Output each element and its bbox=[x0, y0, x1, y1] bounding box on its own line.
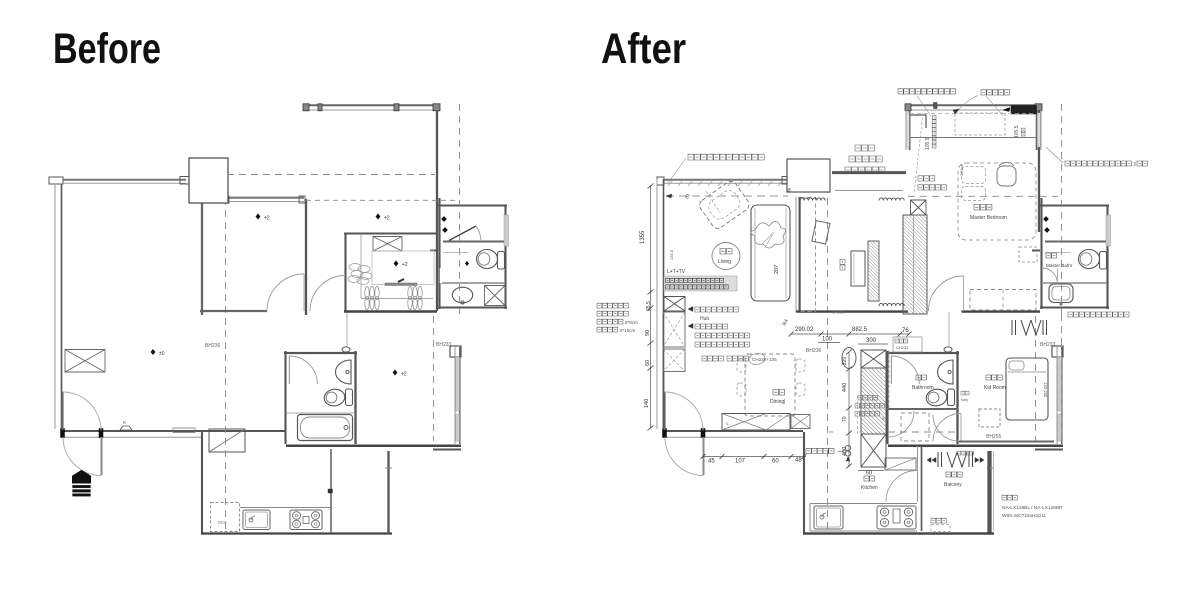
svg-text:Before: Before bbox=[53, 25, 161, 73]
svg-text:BH255: BH255 bbox=[986, 434, 1002, 440]
svg-text:8*16cm: 8*16cm bbox=[620, 328, 636, 333]
svg-text:Kid Room: Kid Room bbox=[984, 385, 1006, 391]
svg-text:Master Bathr: Master Bathr bbox=[1046, 263, 1073, 268]
svg-text:+2: +2 bbox=[402, 262, 408, 268]
svg-text:+2: +2 bbox=[384, 216, 390, 222]
svg-text:76: 76 bbox=[902, 328, 909, 334]
svg-text:90: 90 bbox=[645, 330, 651, 336]
svg-text:Kitchen: Kitchen bbox=[861, 485, 878, 491]
svg-text:Master Bedroom: Master Bedroom bbox=[970, 215, 1007, 221]
svg-text:8*8cm: 8*8cm bbox=[625, 320, 638, 325]
svg-text:100: 100 bbox=[822, 337, 833, 343]
svg-text:c.: c. bbox=[726, 421, 730, 426]
svg-text:440: 440 bbox=[842, 383, 848, 392]
svg-text:REF: REF bbox=[218, 520, 227, 525]
svg-text:45: 45 bbox=[708, 459, 715, 465]
svg-text:105.5: 105.5 bbox=[1014, 125, 1020, 138]
svg-text:105.5: 105.5 bbox=[925, 137, 931, 150]
svg-text:Balcony: Balcony bbox=[944, 482, 962, 488]
svg-text:220: 220 bbox=[842, 356, 848, 365]
svg-text:Bathroom: Bathroom bbox=[912, 385, 934, 391]
svg-text:70: 70 bbox=[842, 416, 848, 422]
svg-text:60: 60 bbox=[866, 471, 872, 477]
svg-text:+2: +2 bbox=[264, 216, 270, 222]
svg-text:48: 48 bbox=[795, 458, 802, 464]
svg-text:BH233: BH233 bbox=[436, 342, 452, 348]
svg-text:150cm: 150cm bbox=[959, 163, 964, 176]
svg-text:W60.4xD722xH1011: W60.4xD722xH1011 bbox=[1002, 513, 1046, 519]
svg-text:60: 60 bbox=[772, 459, 779, 465]
svg-text:60: 60 bbox=[645, 360, 651, 366]
svg-text:bafy: bafy bbox=[961, 398, 968, 402]
svg-text:207: 207 bbox=[774, 265, 780, 274]
svg-text:107: 107 bbox=[735, 459, 746, 465]
svg-text:300: 300 bbox=[866, 338, 877, 344]
svg-text:65: 65 bbox=[882, 416, 887, 421]
svg-text:3: 3 bbox=[1133, 162, 1136, 168]
svg-text:Living: Living bbox=[718, 259, 731, 265]
svg-text:135.5: 135.5 bbox=[669, 249, 674, 260]
svg-text:Hub: Hub bbox=[700, 316, 709, 322]
svg-text:L+T+TV: L+T+TV bbox=[667, 269, 686, 275]
svg-text:Dining|: Dining| bbox=[770, 399, 785, 405]
svg-text:CH232: CH232 bbox=[896, 345, 909, 350]
svg-text:140: 140 bbox=[644, 399, 650, 408]
svg-text:+2: +2 bbox=[401, 372, 407, 378]
svg-text:882.5: 882.5 bbox=[852, 327, 868, 333]
svg-text:BH236: BH236 bbox=[205, 343, 221, 349]
svg-text:BH233: BH233 bbox=[1040, 342, 1056, 348]
svg-text:120-200: 120-200 bbox=[1043, 382, 1048, 398]
svg-text:290.02: 290.02 bbox=[795, 327, 814, 333]
svg-text:K: K bbox=[123, 420, 126, 425]
svg-text:1355: 1355 bbox=[640, 230, 646, 244]
svg-text:NA-LX128BL / NA-LX128BR: NA-LX128BL / NA-LX128BR bbox=[1002, 505, 1063, 511]
svg-text:After: After bbox=[601, 25, 686, 73]
svg-text:DH225: DH225 bbox=[832, 310, 845, 315]
svg-text:±0: ±0 bbox=[159, 351, 165, 357]
svg-text:65.5: 65.5 bbox=[646, 301, 652, 311]
svg-text:BH236: BH236 bbox=[806, 348, 822, 354]
